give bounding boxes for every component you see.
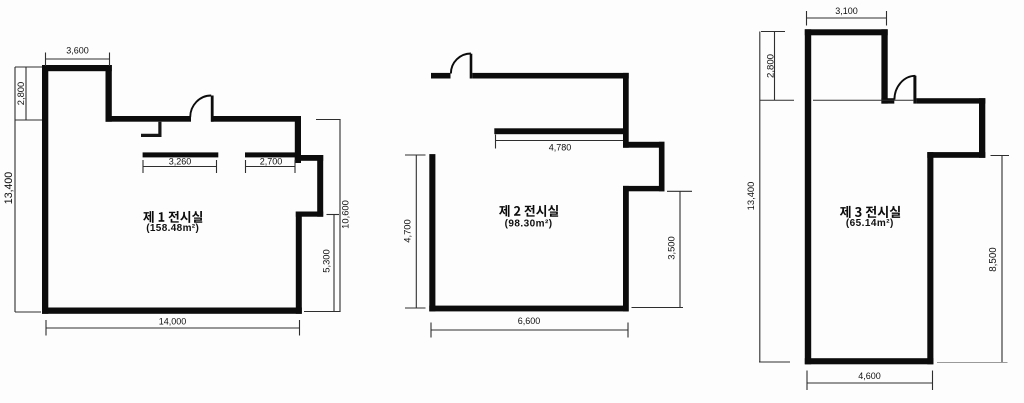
- svg-text:5,300: 5,300: [321, 249, 332, 272]
- svg-text:2,700: 2,700: [260, 156, 283, 166]
- svg-text:6,600: 6,600: [518, 316, 541, 326]
- svg-text:3,100: 3,100: [835, 6, 858, 16]
- svg-text:4,780: 4,780: [549, 142, 572, 152]
- svg-text:2,800: 2,800: [765, 54, 776, 78]
- svg-text:3,260: 3,260: [169, 156, 192, 166]
- svg-text:13,400: 13,400: [745, 182, 756, 211]
- svg-text:4,600: 4,600: [858, 371, 881, 381]
- svg-text:3,500: 3,500: [666, 236, 677, 259]
- svg-text:14,000: 14,000: [159, 317, 187, 327]
- svg-text:2,800: 2,800: [15, 82, 26, 105]
- svg-text:3,600: 3,600: [66, 46, 89, 56]
- svg-text:(98.30m²): (98.30m²): [505, 219, 553, 230]
- svg-text:10,600: 10,600: [339, 200, 350, 229]
- svg-text:(158.48m²): (158.48m²): [146, 223, 199, 234]
- svg-text:13,400: 13,400: [3, 172, 15, 205]
- svg-text:8,500: 8,500: [988, 247, 999, 272]
- svg-text:(65.14m²): (65.14m²): [846, 218, 894, 229]
- svg-text:4,700: 4,700: [402, 219, 413, 242]
